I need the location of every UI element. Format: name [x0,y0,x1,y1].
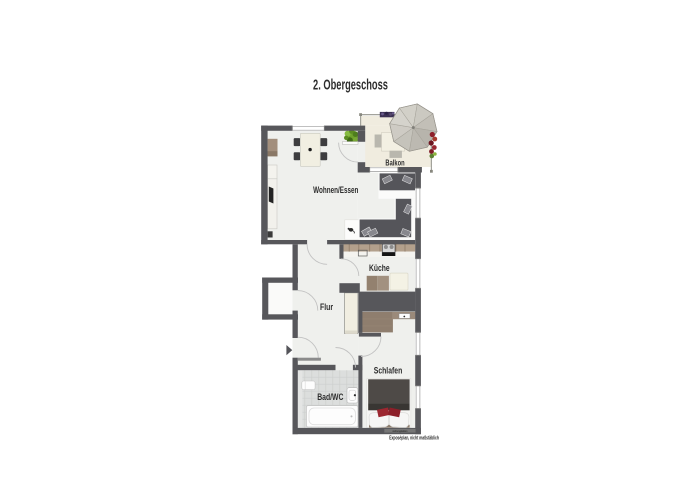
svg-text:Wohnen/Essen: Wohnen/Essen [313,185,358,195]
svg-text:Exposéplan, nicht maßstäblich: Exposéplan, nicht maßstäblich [389,435,439,441]
svg-text:Balkon: Balkon [385,160,404,168]
svg-text:Bad/WC: Bad/WC [317,392,343,402]
svg-text:wohnungshelden: wohnungshelden [392,431,407,433]
svg-text:Schlafen: Schlafen [374,366,403,376]
svg-text:2. Obergeschoss: 2. Obergeschoss [313,76,388,93]
svg-text:Küche: Küche [369,263,390,273]
svg-text:Flur: Flur [320,302,333,312]
